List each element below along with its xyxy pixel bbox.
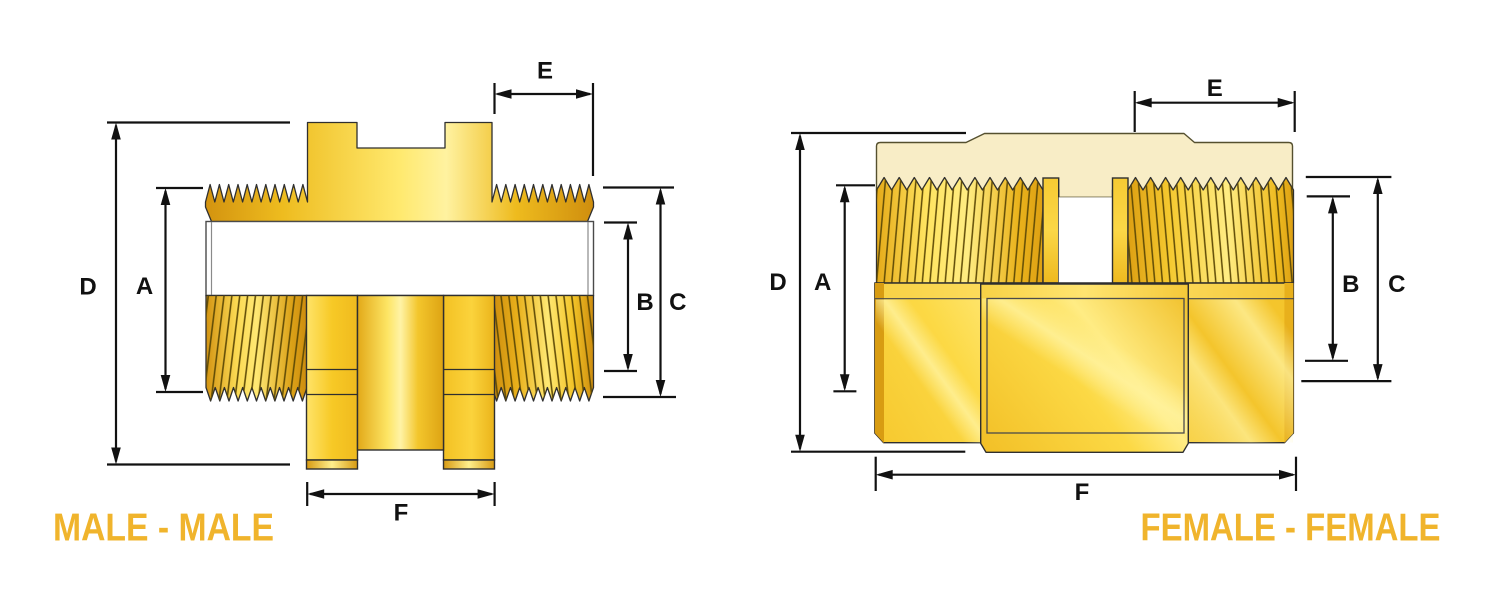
svg-text:A: A: [136, 273, 153, 300]
svg-text:D: D: [769, 269, 786, 296]
svg-text:B: B: [636, 289, 653, 316]
svg-text:C: C: [1388, 271, 1405, 298]
svg-text:FEMALE - FEMALE: FEMALE - FEMALE: [1141, 507, 1441, 550]
svg-text:E: E: [537, 58, 553, 85]
svg-text:A: A: [814, 269, 831, 296]
svg-text:F: F: [394, 500, 409, 527]
svg-text:C: C: [669, 289, 686, 316]
svg-text:E: E: [1207, 75, 1223, 102]
svg-text:MALE - MALE: MALE - MALE: [53, 507, 274, 550]
svg-text:F: F: [1075, 479, 1090, 506]
svg-text:B: B: [1342, 271, 1359, 298]
svg-text:D: D: [79, 274, 96, 301]
